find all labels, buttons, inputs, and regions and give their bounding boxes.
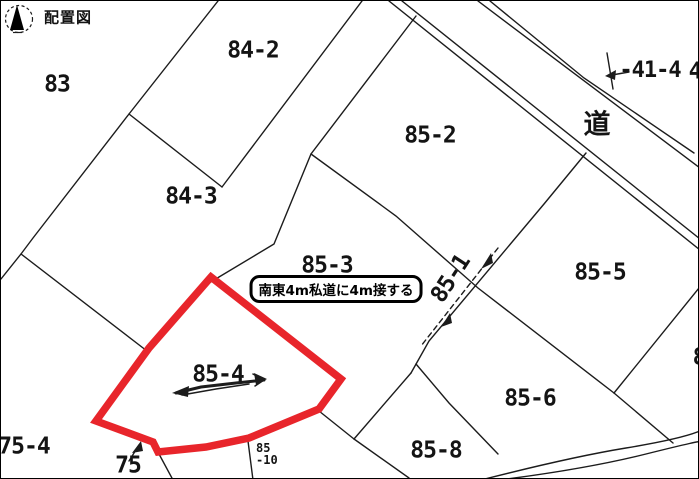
boundary-75-4 — [21, 254, 147, 351]
parcel-label-85-4: 85-4 — [192, 364, 243, 387]
parcel-label-85-8: 85-8 — [410, 440, 461, 463]
boundary-west — [1, 1, 218, 279]
arrow-75-head — [132, 441, 143, 453]
parcel-label-85-2: 85-2 — [404, 125, 455, 148]
parcel-label-75-4: 75-4 — [0, 436, 50, 459]
parcel-label-84-3: 84-3 — [165, 186, 216, 209]
parcel-label-85-6: 85-6 — [504, 388, 555, 411]
boundary-85-6-east — [614, 393, 673, 443]
boundary-85-5-east — [614, 288, 699, 393]
parcel-label-84-2: 84-2 — [227, 40, 278, 63]
road-edge-1b — [402, 1, 699, 239]
parcel-label-85-10: 85 -10 — [256, 442, 278, 466]
parcel-label-75: 75 — [115, 455, 141, 478]
page-title: 配置図 — [44, 11, 92, 26]
sliver-41-4-tick — [607, 53, 613, 89]
site-plan-map: 配置図 83 84-2 84-3 85-2 85-3 85-4 85-5 85-… — [0, 0, 699, 479]
parcel-label-41-4: -41-4 — [619, 60, 680, 82]
map-linework — [1, 1, 699, 479]
road-edge-2a — [478, 1, 699, 168]
boundary-strip-lower — [354, 373, 411, 439]
boundary-75-right — [159, 454, 173, 479]
road-curve-outer — [499, 442, 699, 479]
dashed-line-mark-2 — [441, 313, 452, 327]
boundary-85-10-left — [248, 441, 253, 479]
boundary-83-84 — [129, 114, 222, 187]
annotation-text: 南東4m私道に4m接する — [259, 283, 414, 299]
parcel-label-85-5: 85-5 — [574, 262, 625, 285]
parcel-label-83: 83 — [44, 74, 70, 97]
boundary-85-10-right — [354, 439, 409, 478]
parcel-label-4-partial: 4 — [689, 61, 699, 84]
north-arrow-icon — [6, 5, 33, 33]
parcel-label-8-partial: 8 — [693, 347, 699, 370]
road-label: 道 — [584, 112, 611, 139]
boundary-red-connector — [319, 411, 354, 439]
annotation-box: 南東4m私道に4m接する — [250, 275, 423, 303]
private-road-edge — [411, 153, 586, 373]
boundary-84-2-84-3 — [222, 1, 362, 187]
scribble-left-head — [172, 386, 189, 397]
